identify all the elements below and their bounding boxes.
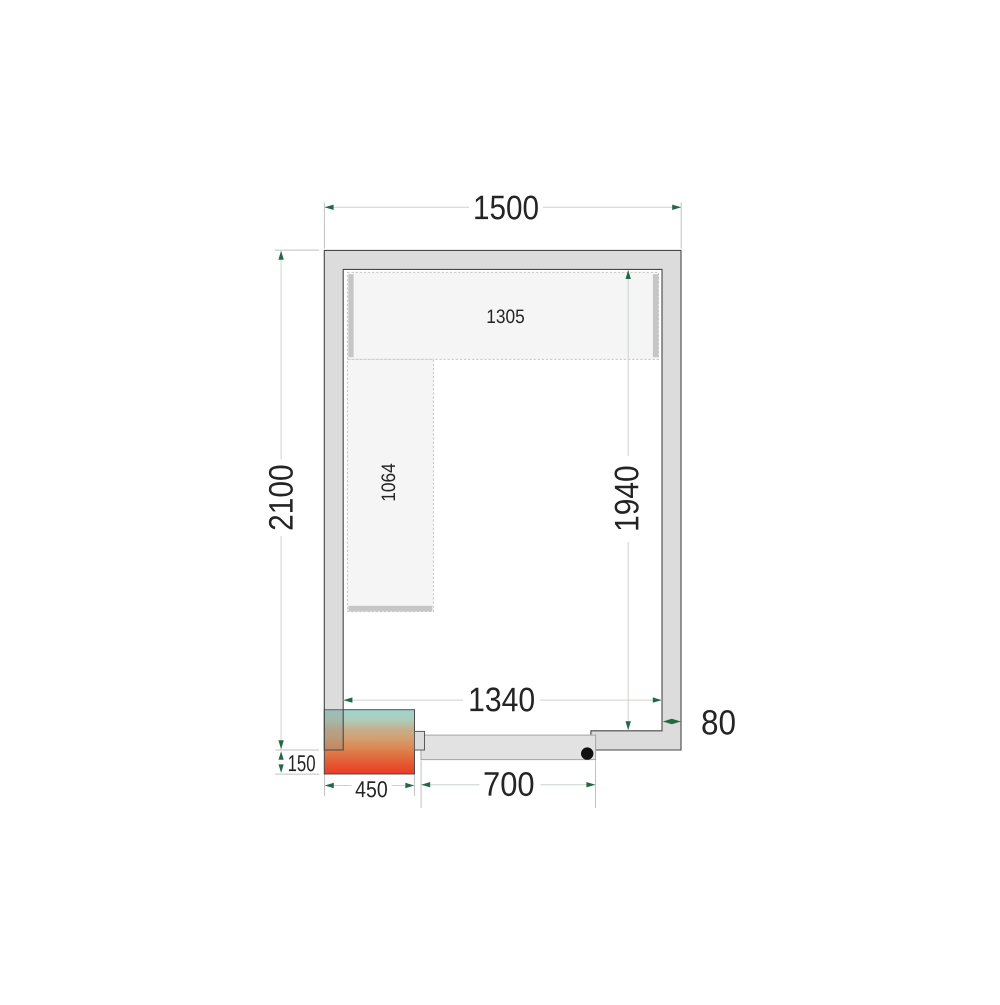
svg-text:1500: 1500	[473, 189, 539, 227]
svg-text:150: 150	[288, 750, 316, 776]
svg-text:1940: 1940	[608, 465, 646, 532]
svg-text:2100: 2100	[263, 464, 301, 531]
svg-text:1305: 1305	[486, 306, 525, 328]
svg-text:1064: 1064	[378, 463, 400, 502]
svg-text:700: 700	[483, 766, 535, 804]
svg-text:80: 80	[701, 703, 736, 742]
svg-text:450: 450	[355, 776, 388, 802]
svg-text:1340: 1340	[468, 681, 535, 719]
